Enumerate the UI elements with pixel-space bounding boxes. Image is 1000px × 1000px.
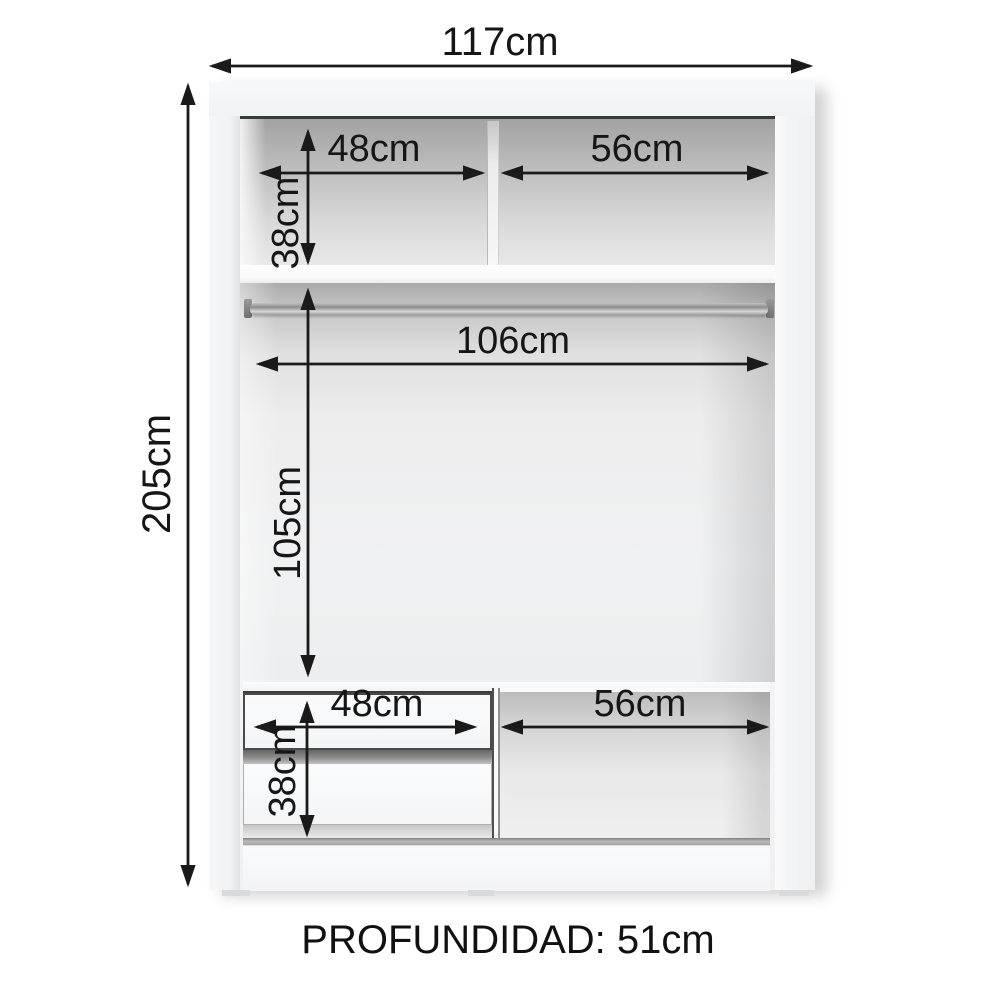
label-total-width: 117cm [441,22,558,62]
depth-caption: PROFUNDIDAD: 51cm [301,920,714,960]
right-side-wall [775,116,815,890]
label-upper-right-width: 56cm [591,130,684,168]
label-hanging-height: 105cm [269,466,307,580]
lower-section-divider [492,688,500,838]
foot-center [468,890,494,896]
label-upper-height: 38cm [267,177,305,270]
foot-left [222,890,250,896]
label-lower-right-width: 56cm [594,685,687,723]
left-side-wall [209,116,240,890]
hanging-rod [250,303,768,315]
upper-compartment-divider [487,121,499,265]
foot-right [779,890,809,896]
wardrobe-top-panel [209,82,815,116]
under-drawer-shade [243,825,492,838]
left-wall-highlight [240,119,266,268]
label-drawer-width: 48cm [331,685,424,723]
bottom-track [243,838,770,845]
label-upper-left-width: 48cm [328,130,421,168]
label-drawer-height: 38cm [264,725,302,818]
base-plinth [243,845,770,891]
long-shelf [240,265,775,284]
label-rod-width: 106cm [456,322,570,360]
label-total-height: 205cm [137,414,177,534]
wardrobe-dimension-diagram: 117cm 205cm 48cm 56cm 38cm 106cm 105cm 4… [0,0,1000,1000]
upper-shelf-compartment [240,116,775,268]
